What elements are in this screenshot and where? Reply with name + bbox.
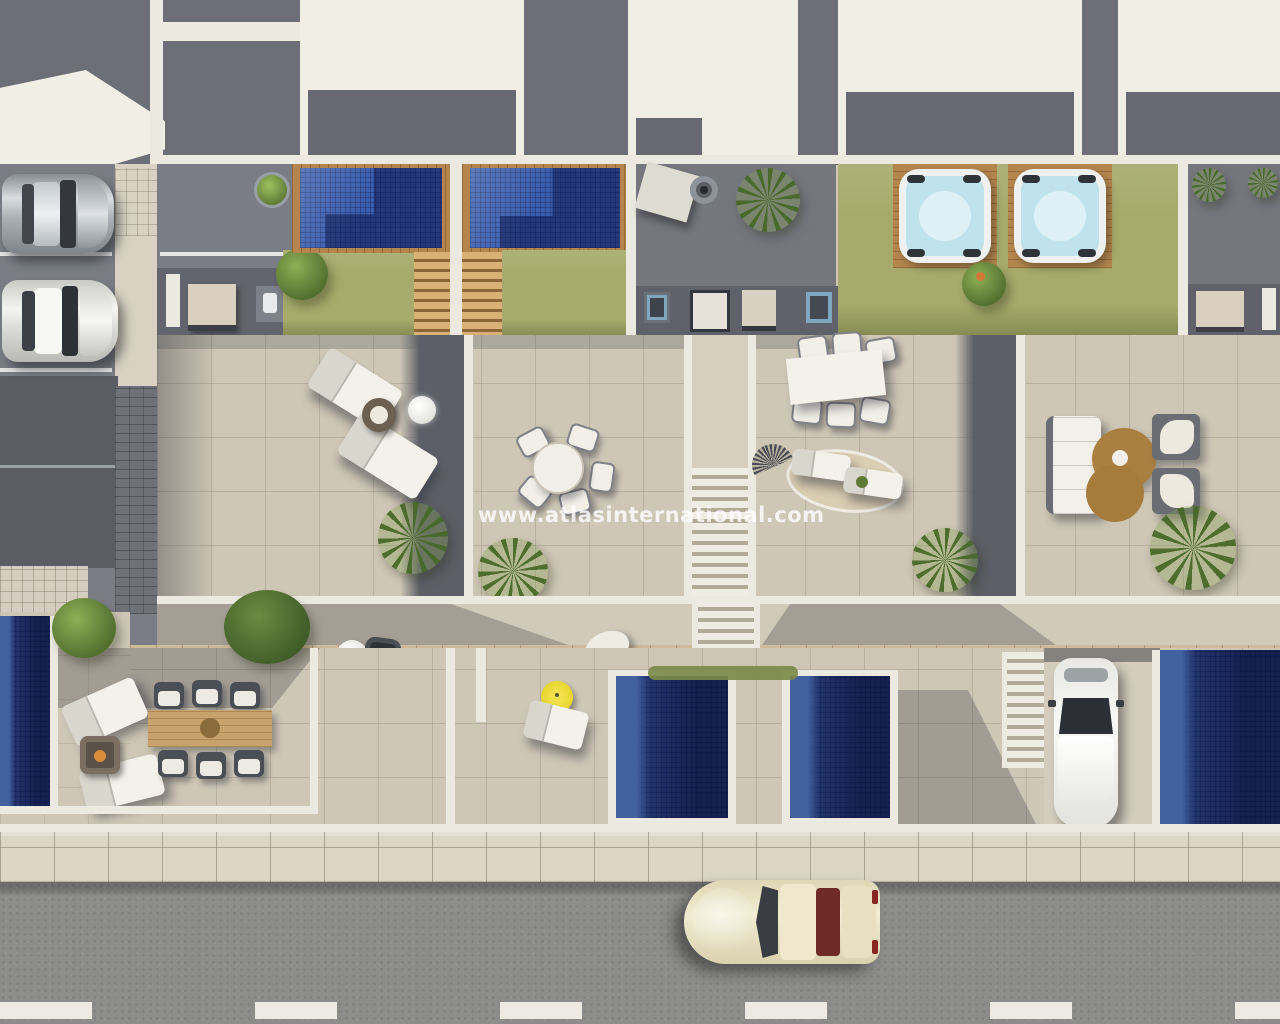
- car-hood: [1058, 736, 1114, 806]
- pool-shadow: [470, 168, 620, 248]
- pool-shadow: [300, 168, 442, 248]
- lane-markings: [0, 1002, 1280, 1019]
- kitchen-unit: [806, 292, 832, 323]
- pool-coping: [50, 616, 58, 812]
- car-rear-window: [22, 291, 35, 351]
- table-tray: [370, 406, 388, 424]
- headrest: [963, 175, 981, 183]
- headrest: [1022, 249, 1040, 257]
- lower-pool-a: [616, 676, 728, 818]
- parking-line: [160, 252, 290, 256]
- staircase-central: [692, 468, 748, 600]
- pool-coping-right: [1152, 650, 1160, 832]
- car-roof: [32, 182, 60, 246]
- palm-terrace-2: [478, 538, 548, 604]
- white-car: [2, 276, 118, 366]
- car-rear-window: [22, 184, 34, 244]
- bbq-unit: [1196, 291, 1244, 332]
- dining-chair: [858, 396, 892, 427]
- terrace-shadow-left: [157, 335, 217, 600]
- palm-terrace-1: [378, 502, 448, 574]
- parapet-villa-2: [626, 164, 636, 335]
- ball-lamp: [408, 396, 436, 424]
- car-taillight: [872, 890, 878, 904]
- silver-car: [2, 170, 114, 258]
- hot-tub-seat: [1034, 191, 1086, 241]
- potted-plant: [856, 476, 868, 488]
- pool-far-right: [1160, 650, 1280, 832]
- palm-small: [1192, 168, 1226, 202]
- palm-terrace-3: [912, 528, 978, 592]
- kitchen-unit: [742, 290, 776, 331]
- headrest: [1078, 249, 1096, 257]
- rug-circle: [1086, 464, 1144, 522]
- street-wall: [0, 824, 1280, 832]
- plunge-pool-2: [470, 168, 620, 248]
- sink-basin: [263, 293, 277, 313]
- lower-pool-b: [790, 676, 890, 818]
- car-rear-window: [1064, 668, 1108, 682]
- staircase-central-lower: [692, 600, 760, 648]
- planter-tree: [254, 172, 290, 208]
- divider-wall-1-2: [450, 164, 462, 335]
- parasol-pole: [555, 693, 559, 697]
- wicker-chair: [196, 752, 226, 779]
- armchair-cushion: [1160, 420, 1194, 454]
- car-windshield: [60, 180, 76, 248]
- sidewalk: [0, 832, 1280, 882]
- parked-white-car: [1054, 658, 1118, 828]
- car-windshield: [62, 286, 78, 356]
- roof-patio-1: [308, 90, 516, 165]
- car-mirror: [1048, 700, 1056, 707]
- car-roof: [780, 884, 816, 960]
- kitchen-door: [166, 274, 180, 327]
- pool-far-left: [0, 616, 50, 812]
- palm-terrace-4: [1150, 506, 1236, 590]
- staircase-driveway: [1002, 652, 1047, 768]
- garden-tree: [224, 590, 310, 664]
- wicker-chair: [234, 750, 264, 777]
- table-bowl: [200, 718, 220, 738]
- car-hood: [78, 180, 108, 248]
- palm-patio: [736, 168, 800, 232]
- car-taillight: [872, 940, 878, 954]
- sidewalk-joint: [0, 847, 1280, 848]
- kitchen-unit: [644, 292, 670, 323]
- lawn-villa-2: [502, 250, 628, 335]
- kitchen-unit: [690, 290, 730, 332]
- wicker-chair: [192, 680, 222, 707]
- fire-pit-center: [700, 186, 708, 194]
- bbq-unit: [188, 284, 236, 331]
- carport-roof: [0, 376, 118, 568]
- headrest: [963, 249, 981, 257]
- parapet-3-4: [1016, 335, 1025, 600]
- round-dining-table: [532, 442, 584, 494]
- headrest: [1078, 175, 1096, 183]
- dining-chair: [588, 460, 616, 493]
- dining-chair: [826, 401, 857, 428]
- carport-joint: [0, 465, 118, 468]
- car-windshield: [1059, 698, 1113, 734]
- headrest: [907, 175, 925, 183]
- car-rear-window: [816, 888, 840, 956]
- classic-car: [684, 880, 880, 964]
- parking-line: [0, 368, 112, 372]
- headrest: [907, 249, 925, 257]
- car-hood-highlight: [692, 888, 756, 956]
- wicker-chair: [230, 682, 260, 709]
- garden-bush: [52, 598, 116, 658]
- wicker-chair: [158, 750, 188, 777]
- hot-tub-seat: [919, 191, 971, 241]
- car-hood: [80, 286, 112, 356]
- hot-tub-2: [1014, 169, 1106, 263]
- palm-small: [1248, 168, 1278, 198]
- roof-parapet-bottom: [150, 155, 1280, 164]
- roof-parapet-left: [150, 0, 163, 165]
- parapet-lower-left-v: [310, 648, 318, 814]
- paver-strip: [115, 386, 157, 614]
- car-trunk: [842, 886, 876, 958]
- headrest: [1022, 175, 1040, 183]
- plunge-pool-1: [300, 168, 442, 248]
- aerial-render: www.atlasinternational.com: [0, 0, 1280, 1024]
- flower-dot: [976, 272, 985, 281]
- stairs-deck-2: [462, 252, 502, 335]
- parapet-1-2: [464, 335, 473, 600]
- armchair-cushion: [1160, 474, 1194, 508]
- car-mirror: [1116, 700, 1124, 707]
- wall-white-l2: [476, 648, 486, 722]
- flowering-plant: [962, 262, 1006, 306]
- rug-tray: [1112, 450, 1128, 466]
- hot-tub-1: [899, 169, 991, 263]
- car-roof: [34, 288, 62, 354]
- watermark: www.atlasinternational.com: [478, 503, 798, 527]
- kitchen-door: [1262, 288, 1276, 330]
- stair-wall-left: [684, 335, 692, 600]
- walkway-pavers: [115, 168, 157, 236]
- wall-white-l: [446, 648, 455, 824]
- hedge-row: [648, 666, 798, 680]
- wicker-chair: [154, 682, 184, 709]
- parapet-lawn-right: [1178, 164, 1188, 335]
- parapet-lower-left-h: [0, 806, 318, 814]
- fire-pit-flame: [94, 750, 106, 762]
- tree-villa-1: [276, 248, 328, 300]
